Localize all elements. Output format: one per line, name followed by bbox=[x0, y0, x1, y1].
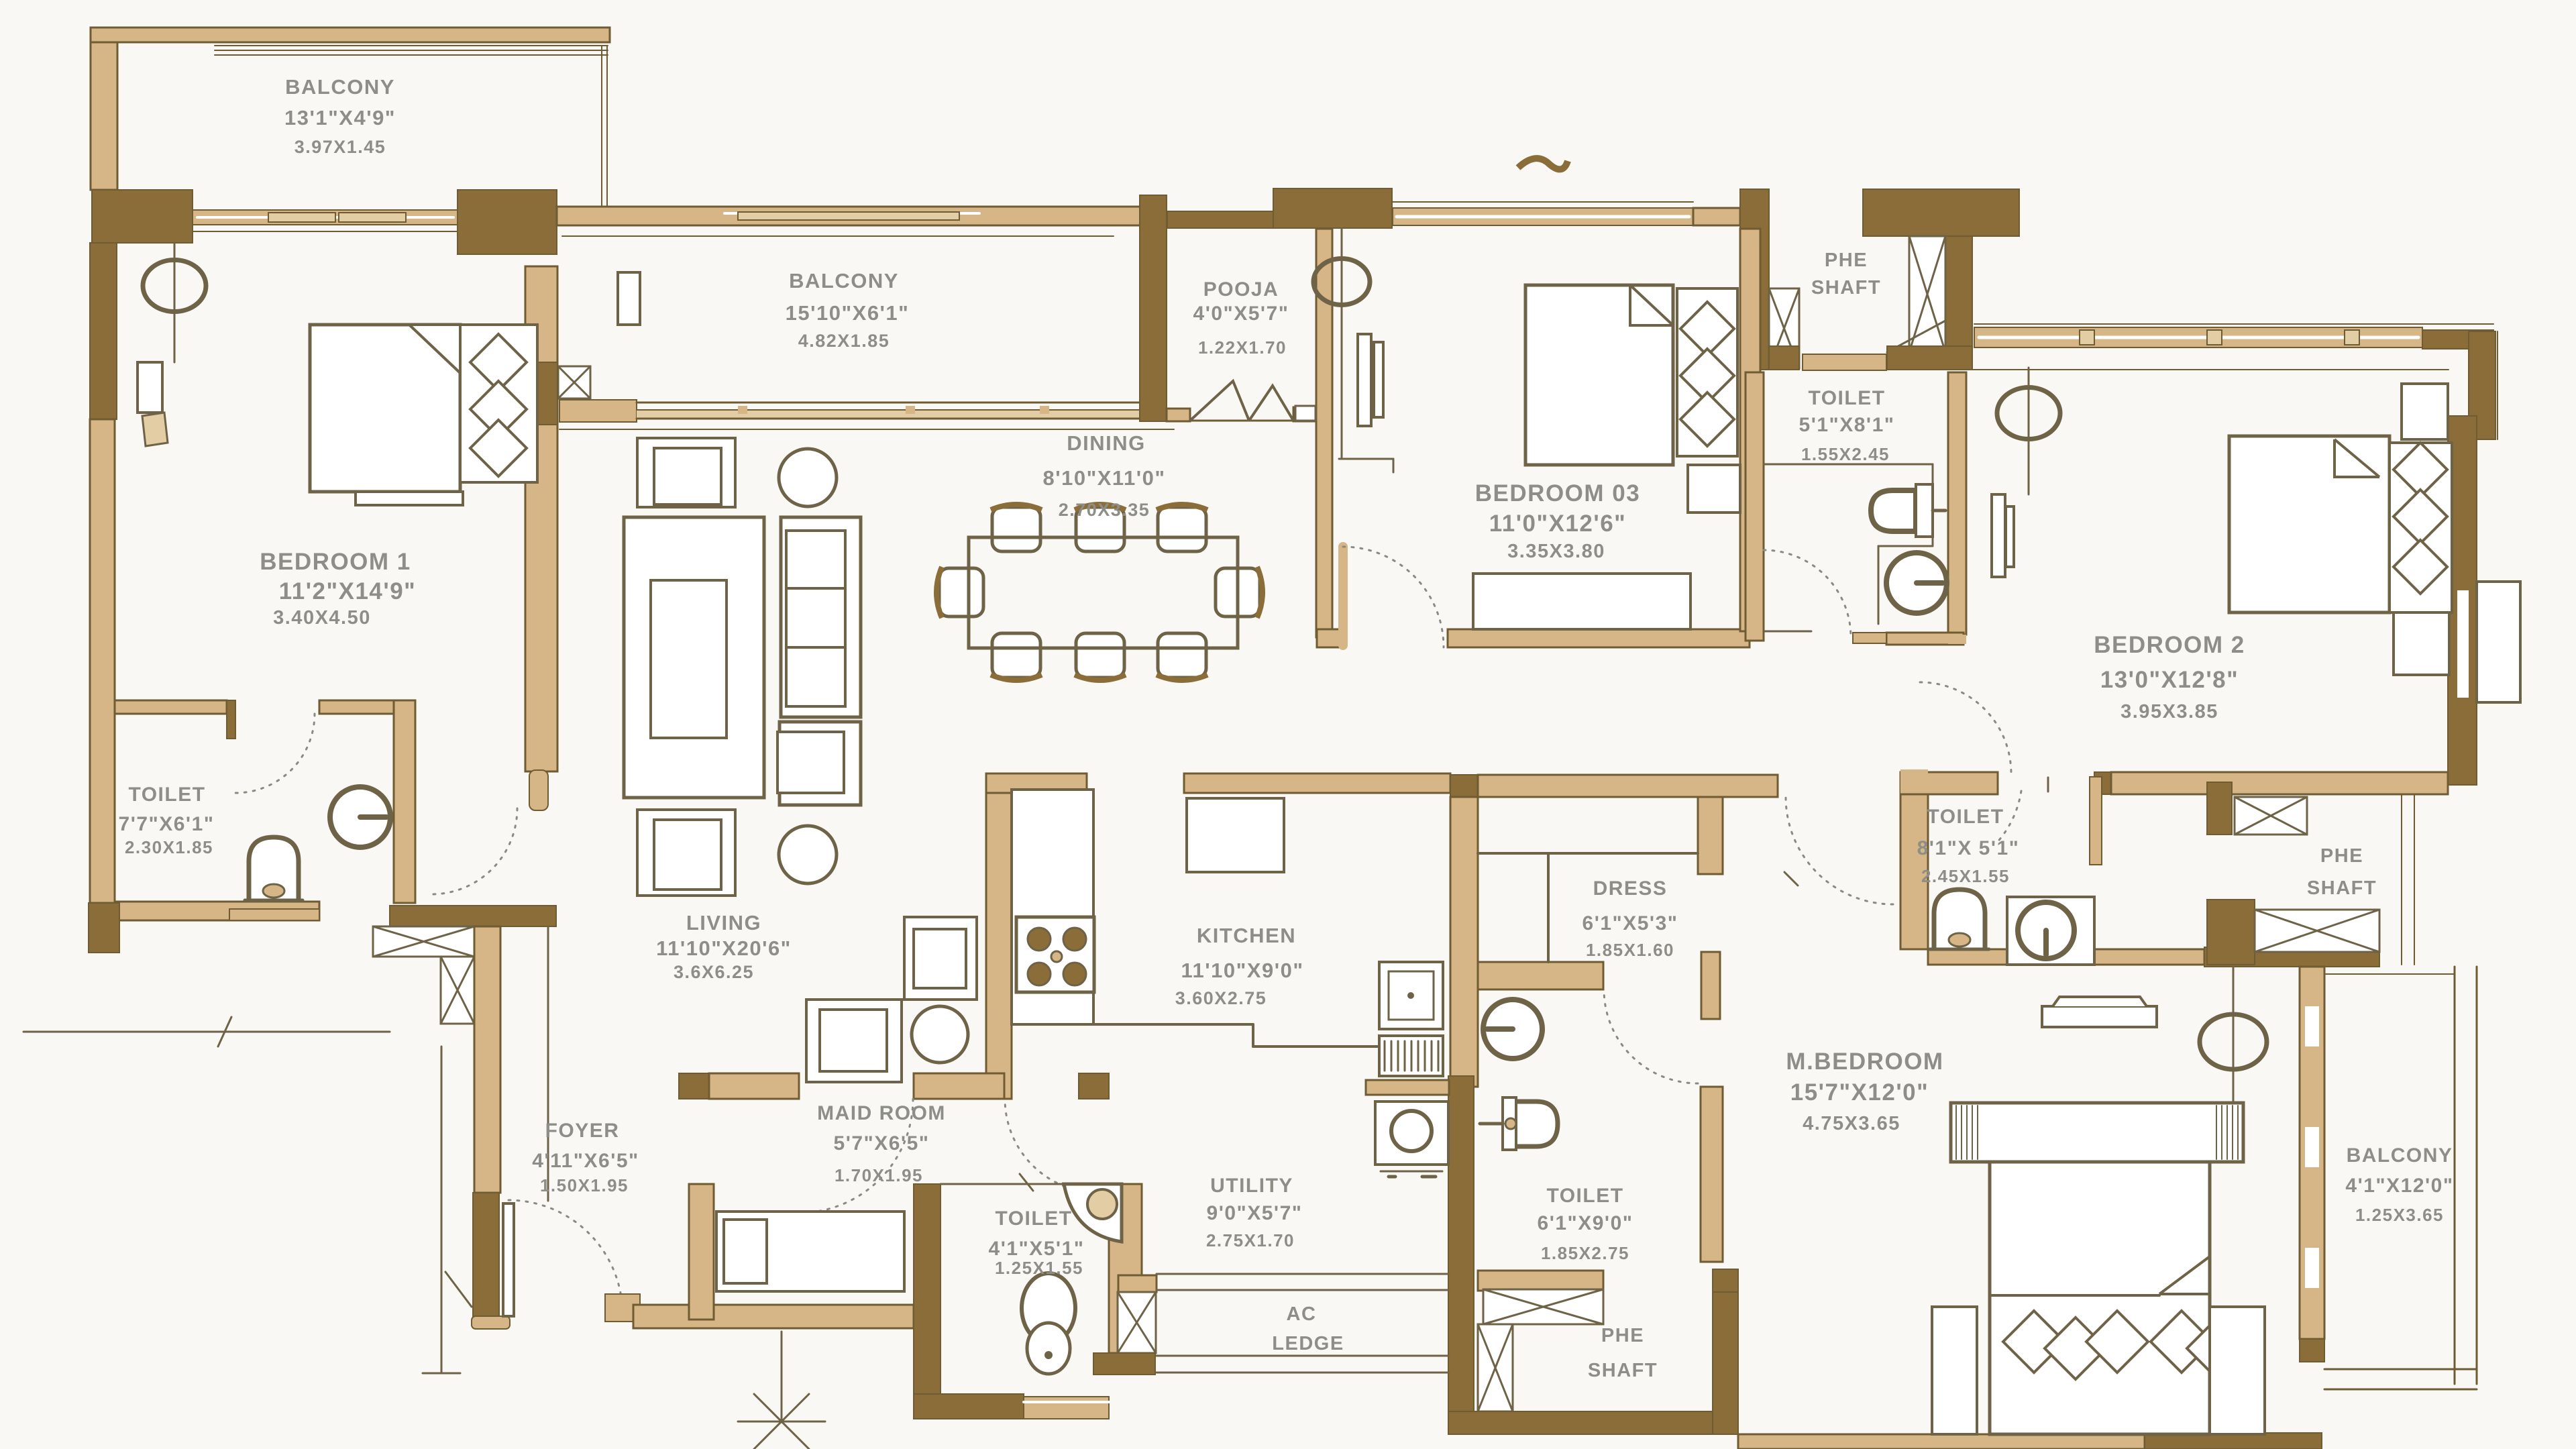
svg-text:3.97X1.45: 3.97X1.45 bbox=[294, 137, 386, 157]
svg-text:1.85X2.75: 1.85X2.75 bbox=[1541, 1243, 1629, 1263]
svg-text:13'1"X4'9": 13'1"X4'9" bbox=[284, 106, 396, 129]
svg-text:LIVING: LIVING bbox=[686, 911, 761, 934]
svg-text:M.BEDROOM: M.BEDROOM bbox=[1786, 1049, 1943, 1075]
svg-text:6'1"X5'3": 6'1"X5'3" bbox=[1582, 912, 1678, 934]
svg-text:1.25X1.55: 1.25X1.55 bbox=[995, 1258, 1083, 1278]
svg-text:1.85X1.60: 1.85X1.60 bbox=[1586, 940, 1674, 960]
svg-text:DRESS: DRESS bbox=[1593, 877, 1668, 900]
svg-text:UTILITY: UTILITY bbox=[1210, 1175, 1293, 1197]
svg-text:BALCONY: BALCONY bbox=[2347, 1144, 2453, 1167]
svg-text:1.22X1.70: 1.22X1.70 bbox=[1198, 337, 1287, 358]
svg-text:BALCONY: BALCONY bbox=[789, 269, 899, 292]
svg-text:4.75X3.65: 4.75X3.65 bbox=[1803, 1113, 1900, 1134]
svg-text:LEDGE: LEDGE bbox=[1272, 1333, 1344, 1354]
svg-text:4'1"X12'0": 4'1"X12'0" bbox=[2345, 1175, 2453, 1197]
svg-text:TOILET: TOILET bbox=[1927, 806, 2004, 828]
svg-text:4'0"X5'7": 4'0"X5'7" bbox=[1193, 303, 1289, 325]
svg-text:11'2"X14'9": 11'2"X14'9" bbox=[279, 578, 417, 604]
svg-text:TOILET: TOILET bbox=[128, 784, 205, 806]
svg-text:PHE: PHE bbox=[1601, 1325, 1644, 1346]
svg-text:BALCONY: BALCONY bbox=[285, 75, 395, 99]
svg-text:2.30X1.85: 2.30X1.85 bbox=[125, 837, 213, 857]
svg-text:2.45X1.55: 2.45X1.55 bbox=[1921, 866, 2010, 886]
svg-text:8'10"X11'0": 8'10"X11'0" bbox=[1042, 466, 1165, 490]
svg-text:1.25X3.65: 1.25X3.65 bbox=[2355, 1205, 2444, 1225]
svg-text:TOILET: TOILET bbox=[995, 1207, 1072, 1230]
svg-text:15'7"X12'0": 15'7"X12'0" bbox=[1790, 1079, 1929, 1106]
svg-text:11'10"X9'0": 11'10"X9'0" bbox=[1181, 959, 1303, 982]
svg-text:SHAFT: SHAFT bbox=[2307, 877, 2377, 899]
svg-text:3.40X4.50: 3.40X4.50 bbox=[273, 607, 371, 629]
svg-text:11'0"X12'6": 11'0"X12'6" bbox=[1489, 511, 1627, 537]
svg-text:3.60X2.75: 3.60X2.75 bbox=[1175, 988, 1267, 1008]
svg-text:FOYER: FOYER bbox=[545, 1120, 620, 1142]
svg-text:13'0"X12'8": 13'0"X12'8" bbox=[2100, 667, 2239, 693]
svg-text:TOILET: TOILET bbox=[1546, 1185, 1623, 1207]
svg-text:3.35X3.80: 3.35X3.80 bbox=[1507, 541, 1605, 562]
svg-text:TOILET: TOILET bbox=[1808, 387, 1885, 409]
svg-text:PHE: PHE bbox=[1825, 250, 1868, 271]
svg-text:3.95X3.85: 3.95X3.85 bbox=[2121, 701, 2218, 722]
svg-text:9'0"X5'7": 9'0"X5'7" bbox=[1207, 1202, 1303, 1224]
svg-text:SHAFT: SHAFT bbox=[1811, 277, 1881, 299]
svg-text:15'10"X6'1": 15'10"X6'1" bbox=[786, 301, 910, 325]
svg-text:KITCHEN: KITCHEN bbox=[1197, 924, 1296, 947]
svg-text:4'11"X6'5": 4'11"X6'5" bbox=[532, 1150, 639, 1172]
svg-text:AC: AC bbox=[1287, 1303, 1317, 1325]
svg-text:1.55X2.45: 1.55X2.45 bbox=[1801, 444, 1890, 464]
svg-text:8'1"X 5'1": 8'1"X 5'1" bbox=[1917, 837, 2020, 859]
svg-text:PHE: PHE bbox=[2320, 845, 2363, 867]
svg-text:7'7"X6'1": 7'7"X6'1" bbox=[119, 813, 215, 835]
svg-text:1.50X1.95: 1.50X1.95 bbox=[540, 1175, 629, 1195]
svg-text:3.6X6.25: 3.6X6.25 bbox=[674, 962, 754, 982]
svg-text:11'10"X20'6": 11'10"X20'6" bbox=[656, 936, 792, 960]
svg-text:MAID ROOM: MAID ROOM bbox=[817, 1102, 946, 1124]
svg-text:BEDROOM 1: BEDROOM 1 bbox=[260, 549, 411, 575]
svg-text:BEDROOM 03: BEDROOM 03 bbox=[1475, 480, 1640, 506]
svg-text:1.70X1.95: 1.70X1.95 bbox=[835, 1165, 923, 1185]
svg-text:2.70X3.35: 2.70X3.35 bbox=[1059, 500, 1150, 520]
svg-text:2.75X1.70: 2.75X1.70 bbox=[1206, 1230, 1295, 1250]
svg-text:4.82X1.85: 4.82X1.85 bbox=[798, 331, 890, 351]
svg-text:4'1"X5'1": 4'1"X5'1" bbox=[989, 1238, 1085, 1260]
svg-text:SHAFT: SHAFT bbox=[1588, 1360, 1658, 1381]
svg-text:BEDROOM 2: BEDROOM 2 bbox=[2094, 632, 2245, 658]
svg-text:POOJA: POOJA bbox=[1203, 278, 1279, 301]
svg-text:5'1"X8'1": 5'1"X8'1" bbox=[1799, 414, 1895, 436]
svg-text:6'1"X9'0": 6'1"X9'0" bbox=[1538, 1212, 1633, 1234]
svg-text:5'7"X6'5": 5'7"X6'5" bbox=[834, 1132, 930, 1155]
svg-text:DINING: DINING bbox=[1067, 431, 1146, 455]
